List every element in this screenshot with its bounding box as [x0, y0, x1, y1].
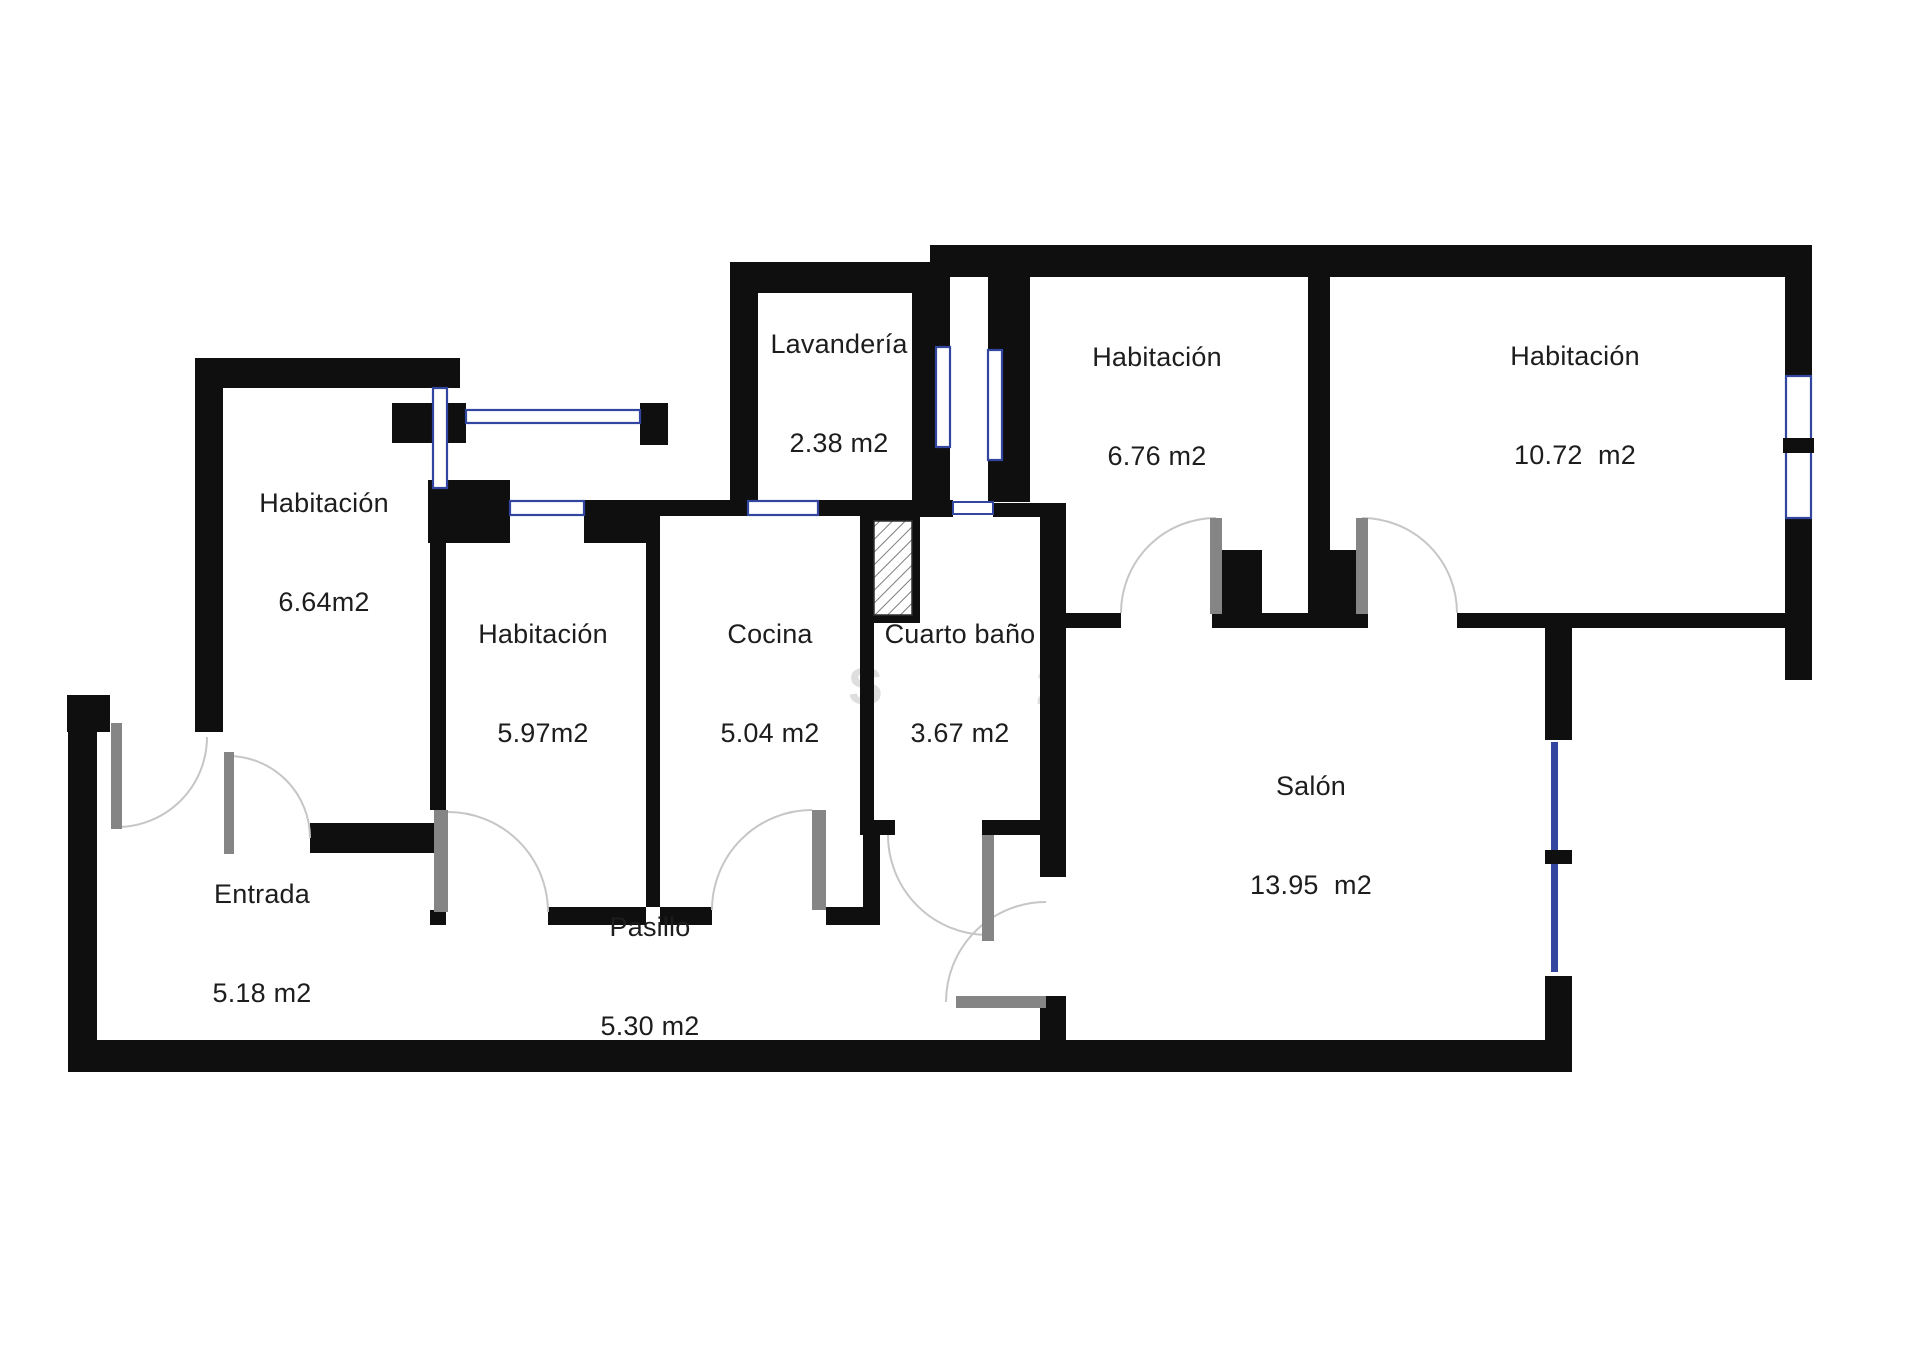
- room-label-pasillo: Pasillo 5.30 m2: [601, 845, 700, 1109]
- room-label-cuarto-bano: Cuarto baño 3.67 m2: [885, 552, 1036, 816]
- room-name: Cuarto baño: [885, 618, 1036, 651]
- room-name: Habitación: [259, 487, 389, 520]
- arc-habitacion-597-door: [448, 812, 548, 912]
- room-area: 6.76 m2: [1092, 440, 1222, 473]
- window-shaft-right: [988, 350, 1002, 460]
- room-name: Pasillo: [601, 911, 700, 944]
- room-label-lavanderia: Lavandería 2.38 m2: [770, 262, 907, 526]
- room-name: Entrada: [213, 878, 312, 911]
- room-label-entrada: Entrada 5.18 m2: [213, 812, 312, 1076]
- window-habitacion-1072-divider: [1783, 438, 1814, 453]
- door-leaf-salon: [956, 996, 1046, 1008]
- room-label-salon: Salón 13.95 m2: [1250, 704, 1372, 968]
- room-label-habitacion-1072: Habitación 10.72 m2: [1510, 274, 1640, 538]
- room-name: Habitación: [1092, 341, 1222, 374]
- door-leaf-cocina: [812, 810, 826, 910]
- window-habitacion-664: [433, 388, 447, 488]
- room-name: Habitación: [1510, 340, 1640, 373]
- room-name: Cocina: [721, 618, 820, 651]
- arc-salon-door: [946, 902, 1046, 1002]
- room-area: 5.97m2: [478, 717, 608, 750]
- room-area: 5.30 m2: [601, 1010, 700, 1043]
- room-area: 5.04 m2: [721, 717, 820, 750]
- room-name: Salón: [1250, 770, 1372, 803]
- room-area: 3.67 m2: [885, 717, 1036, 750]
- door-leaf-habitacion-597: [434, 810, 448, 912]
- room-area: 5.18 m2: [213, 977, 312, 1010]
- arc-entrance-door: [117, 737, 207, 827]
- door-leaf-habitacion-1072: [1356, 518, 1368, 614]
- room-label-cocina: Cocina 5.04 m2: [721, 552, 820, 816]
- room-label-habitacion-597: Habitación 5.97m2: [478, 552, 608, 816]
- room-label-habitacion-676: Habitación 6.76 m2: [1092, 275, 1222, 539]
- window-cuarto-bano: [953, 502, 993, 514]
- arc-cocina-door: [712, 810, 812, 910]
- room-area: 10.72 m2: [1510, 439, 1640, 472]
- window-salon-upper: [1551, 742, 1558, 850]
- window-shaft-left: [936, 347, 950, 447]
- floor-plan: S 2: [0, 0, 1920, 1357]
- room-name: Habitación: [478, 618, 608, 651]
- arc-cuarto-bano-door: [888, 835, 988, 935]
- door-leaf-entrance: [111, 723, 122, 829]
- room-area: 6.64m2: [259, 586, 389, 619]
- window-habitacion-597: [510, 501, 584, 515]
- room-name: Lavandería: [770, 328, 907, 361]
- window-salon-lower: [1551, 864, 1558, 972]
- room-label-habitacion-664: Habitación 6.64m2: [259, 421, 389, 685]
- arc-habitacion-1072-door: [1362, 518, 1457, 613]
- window-patio: [466, 410, 640, 423]
- room-area: 2.38 m2: [770, 427, 907, 460]
- door-leaf-cuarto-bano: [982, 835, 994, 941]
- room-area: 13.95 m2: [1250, 869, 1372, 902]
